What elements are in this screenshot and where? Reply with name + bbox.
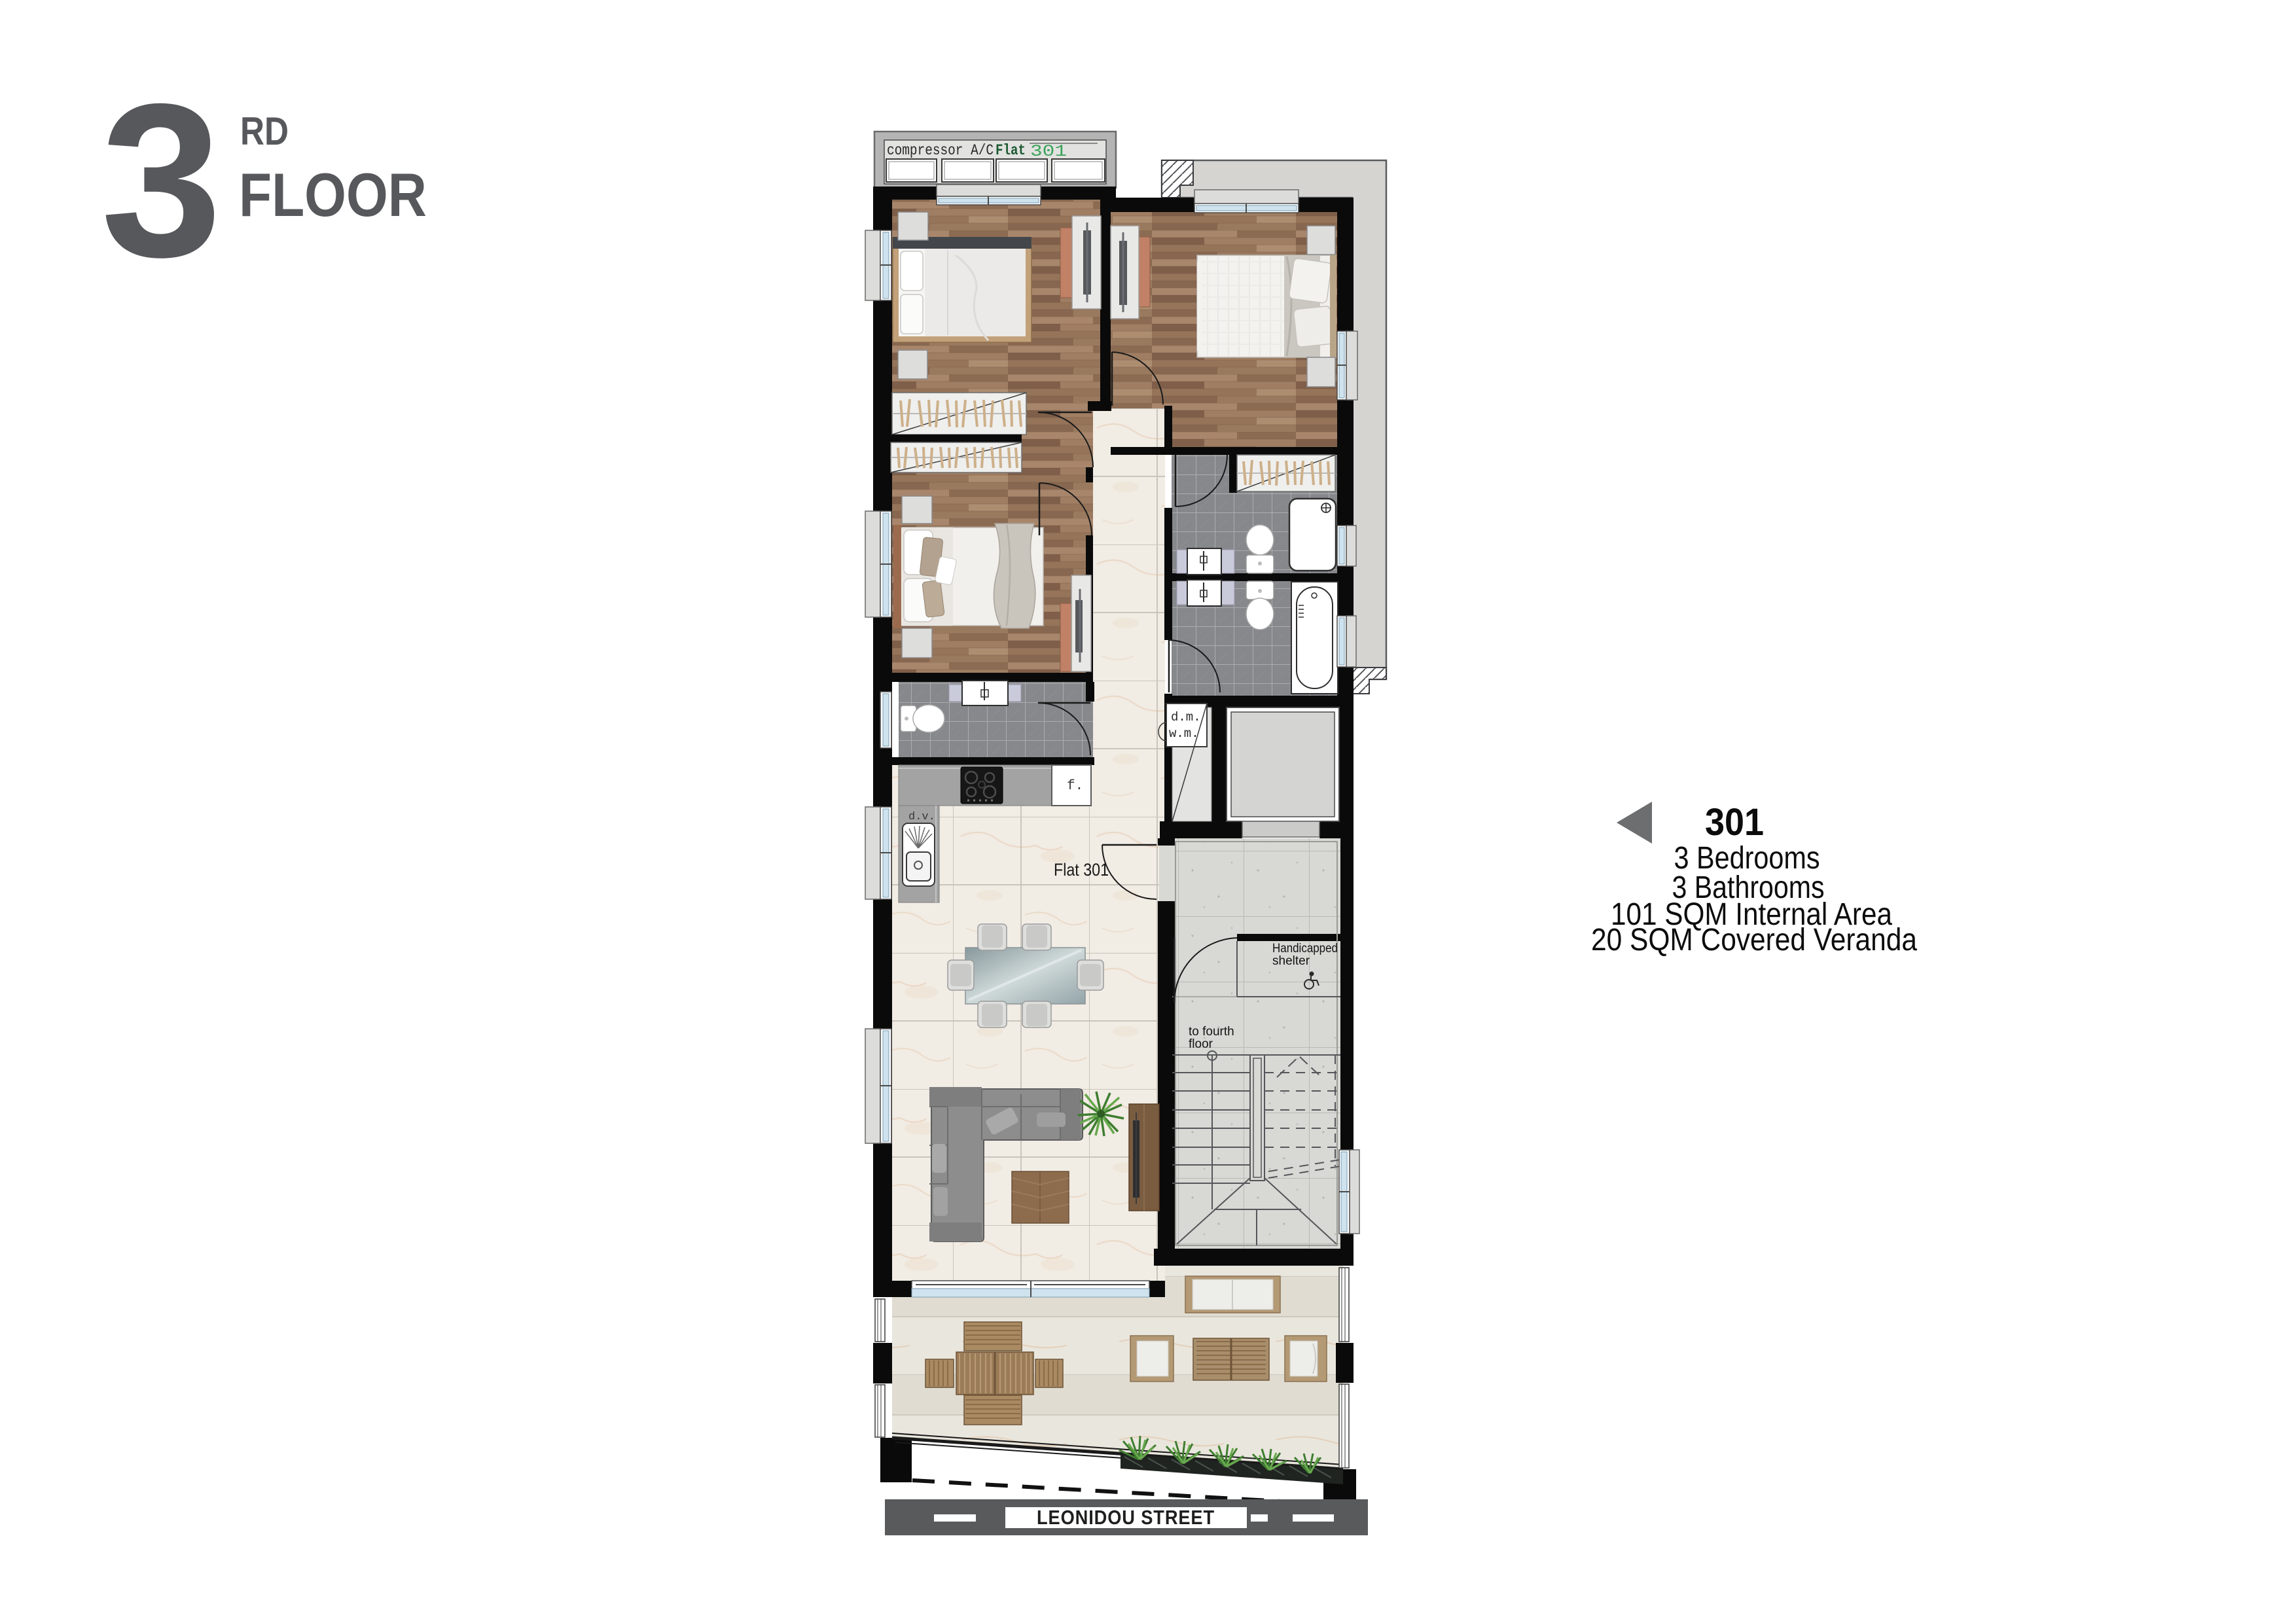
svg-text:FLOOR: FLOOR <box>239 160 427 229</box>
svg-text:20 SQM Covered Veranda: 20 SQM Covered Veranda <box>1591 923 1917 957</box>
svg-text:Flat: Flat <box>996 142 1026 159</box>
svg-text:3: 3 <box>101 58 222 302</box>
svg-text:301: 301 <box>1030 142 1067 161</box>
svg-text:f.: f. <box>1067 779 1083 794</box>
svg-text:d.v.: d.v. <box>908 811 935 823</box>
svg-text:RD: RD <box>240 109 289 153</box>
svg-text:LEONIDOU STREET: LEONIDOU STREET <box>1037 1506 1215 1529</box>
svg-text:w.m.: w.m. <box>1169 726 1199 741</box>
svg-text:to fourth: to fourth <box>1189 1025 1234 1039</box>
svg-text:compressor A/C: compressor A/C <box>887 142 994 159</box>
svg-text:floor: floor <box>1189 1037 1213 1051</box>
svg-text:d.m.: d.m. <box>1171 710 1201 724</box>
svg-text:shelter: shelter <box>1272 954 1310 968</box>
svg-text:Handicapped: Handicapped <box>1272 942 1338 955</box>
svg-text:Flat 301: Flat 301 <box>1054 860 1109 880</box>
svg-text:301: 301 <box>1705 801 1764 844</box>
